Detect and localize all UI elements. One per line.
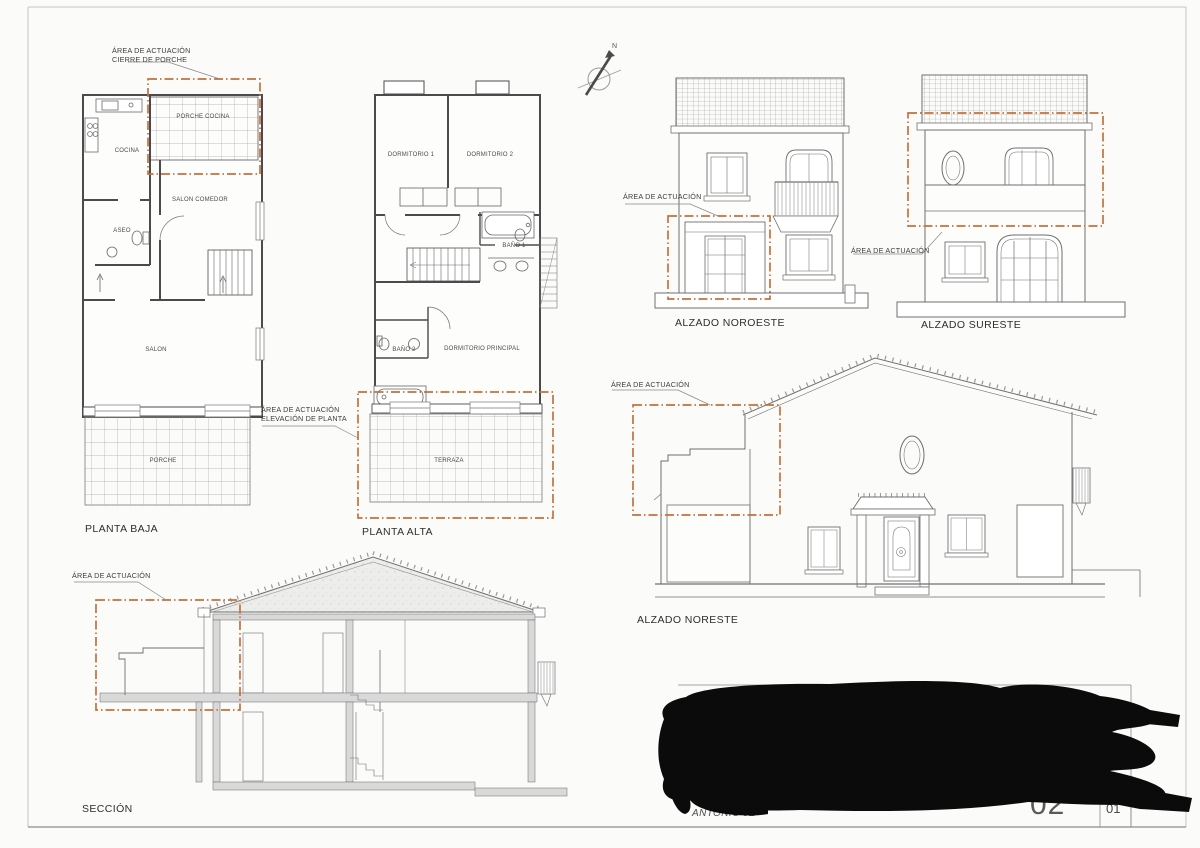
drawing-sheet: ÁREA DE ACTUACIÓN CIERRE DE PORCHE COCIN… — [0, 0, 1200, 848]
redaction-blob — [0, 0, 1200, 848]
